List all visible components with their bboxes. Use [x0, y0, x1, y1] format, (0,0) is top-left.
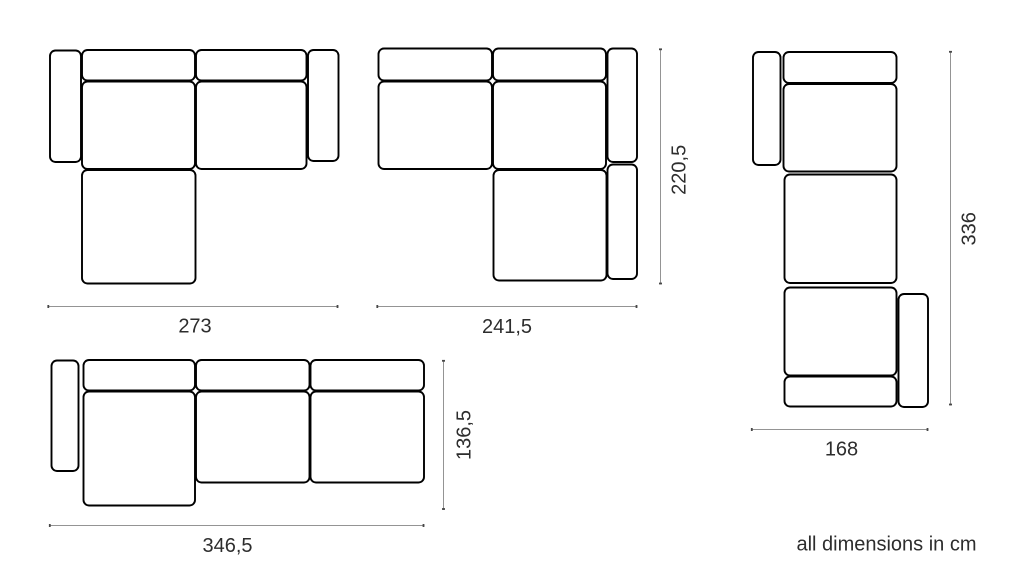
svg-text:all dimensions in cm: all dimensions in cm — [796, 534, 976, 556]
svg-text:168: 168 — [825, 439, 858, 461]
svg-text:241,5: 241,5 — [482, 316, 532, 338]
svg-text:220,5: 220,5 — [668, 145, 690, 195]
svg-text:136,5: 136,5 — [453, 410, 475, 460]
svg-text:346,5: 346,5 — [202, 535, 252, 557]
svg-text:273: 273 — [178, 316, 211, 338]
svg-text:336: 336 — [958, 212, 980, 245]
